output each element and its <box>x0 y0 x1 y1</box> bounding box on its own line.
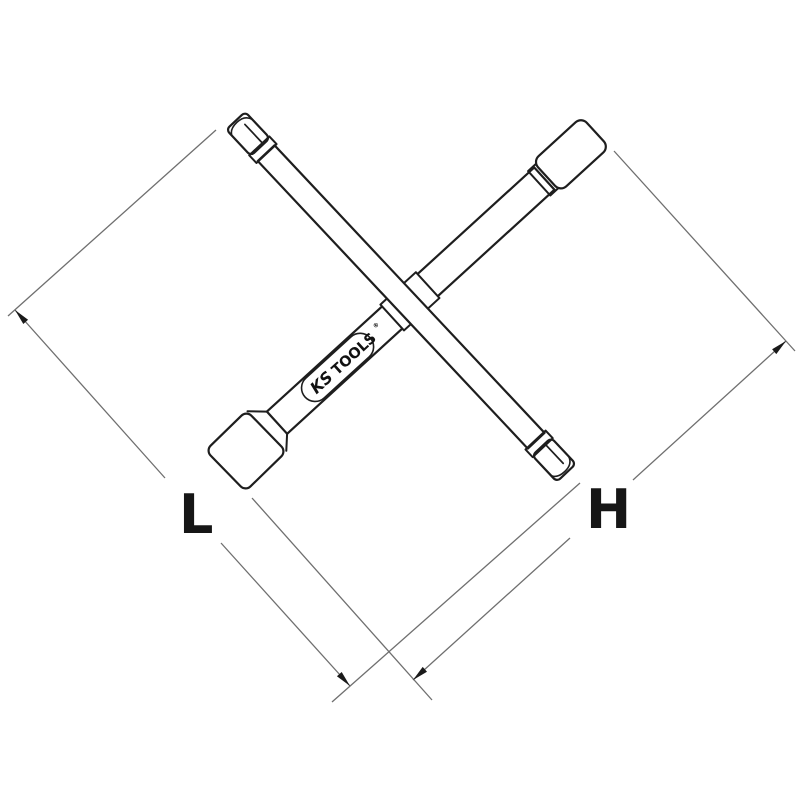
extension-line-l-bottom <box>332 483 580 702</box>
extension-line-l-top <box>8 130 216 316</box>
dimension-label-h: H <box>586 478 631 541</box>
extension-line-h-top <box>614 151 795 351</box>
dimension-arrowheads <box>15 310 786 686</box>
dimension-line-h-upper-segment <box>633 341 786 480</box>
drawing-canvas: L H KS TOOLS <box>0 0 800 800</box>
front-bar <box>226 111 577 482</box>
taper-line-lower <box>286 434 287 451</box>
square-drive-end <box>206 411 287 492</box>
extension-line-h-bottom <box>252 498 432 700</box>
dimension-label-l: L <box>179 483 213 546</box>
dimension-annotations <box>8 130 795 702</box>
tool-drawing: KS TOOLS ® <box>206 111 609 491</box>
dimension-line-l-lower-segment <box>221 543 350 686</box>
dimension-line-l-upper-segment <box>15 310 165 478</box>
cross-wrench-technical-drawing: L H KS TOOLS <box>0 0 800 800</box>
